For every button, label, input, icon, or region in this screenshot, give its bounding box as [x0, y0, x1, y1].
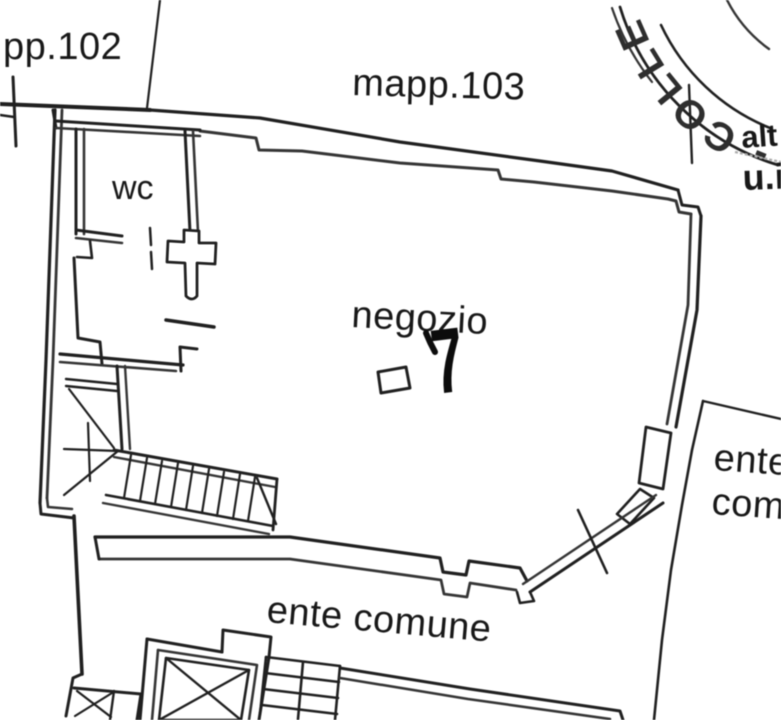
label-ui: u.i	[742, 156, 781, 198]
bottom-right-wall	[340, 668, 623, 720]
bottom-wall	[95, 537, 527, 597]
stairs	[60, 354, 277, 534]
label-alt: alt	[740, 118, 779, 155]
service-steps-grid	[260, 657, 340, 720]
entrance-x-mark	[578, 510, 607, 573]
door-pillar	[150, 228, 216, 371]
door-opening-dash	[151, 252, 152, 269]
label-ente-right: ente	[712, 437, 781, 484]
pillar-symbol	[378, 367, 410, 393]
wall-pilaster	[639, 427, 671, 489]
label-negozio: negozio	[351, 294, 490, 343]
label-ente-comune: ente comune	[265, 589, 493, 650]
elevator-x-diagonal	[159, 670, 249, 720]
diagonal-boundary-line	[147, 0, 160, 108]
label-parcel-left: pp.102	[3, 26, 122, 68]
door-opening-dash	[150, 228, 151, 245]
floor-plan-svg: - COLLE pp.102 mapp.103 wc negozio 7 ent…	[0, 0, 781, 720]
bottom-left-shaft-box	[74, 688, 141, 720]
label-com-right: com	[710, 481, 781, 528]
wall-hook	[180, 347, 197, 371]
elevator-shaft	[140, 630, 271, 720]
floor-plan: - COLLE pp.102 mapp.103 wc negozio 7 ent…	[0, 0, 781, 720]
boundary-tick	[13, 77, 16, 146]
label-parcel-top: mapp.103	[352, 62, 526, 109]
label-wc: wc	[111, 169, 154, 207]
wc-room-walls	[53, 110, 200, 364]
door-leaf-line	[166, 320, 214, 327]
chamfer-corner	[517, 427, 671, 603]
